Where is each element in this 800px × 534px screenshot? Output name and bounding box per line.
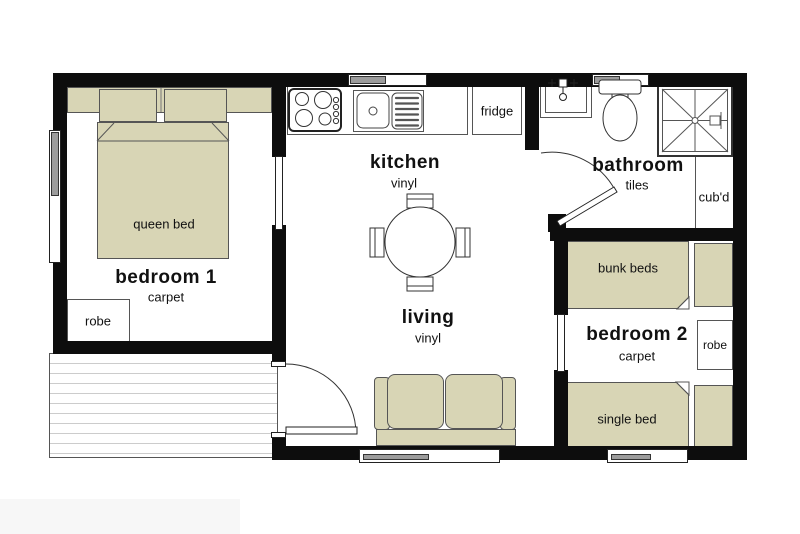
window-bathroom xyxy=(592,74,649,86)
queen-bed-pillow-right xyxy=(164,89,227,122)
cupboard-divider xyxy=(695,157,696,228)
wall-bedroom1-bottom xyxy=(53,341,286,354)
dining-table xyxy=(385,207,455,277)
floor-label-kitchen: vinyl xyxy=(391,176,417,191)
room-label-living: living xyxy=(402,307,455,329)
label-bunk-beds: bunk beds xyxy=(598,261,658,276)
floor-label-bathroom: tiles xyxy=(625,178,648,193)
window-kitchen xyxy=(348,74,427,86)
label-queen-bed: queen bed xyxy=(133,217,194,232)
dining-chairs xyxy=(370,194,470,291)
entry-door-leaf xyxy=(286,427,357,434)
bunk-beds-pillow xyxy=(694,243,733,307)
single-bed-pillow xyxy=(694,385,733,448)
floor-label-bedroom2: carpet xyxy=(619,349,655,364)
floor-plan: bedroom 1 carpet queen bed robe kitchen … xyxy=(0,0,800,534)
window-bedroom1 xyxy=(49,130,61,263)
label-cupboard: cub'd xyxy=(699,190,730,205)
wall-bathroom-left xyxy=(525,87,539,150)
floor-label-living: vinyl xyxy=(415,331,441,346)
label-robe-bedroom1: robe xyxy=(85,314,111,329)
room-label-bathroom: bathroom xyxy=(592,155,684,177)
entry-door-arc xyxy=(286,364,356,434)
entry-door-jamb-top xyxy=(271,361,286,367)
wall-bedroom2-left-lower xyxy=(554,370,568,446)
sofa-cushion-right xyxy=(445,374,503,429)
sofa-cushion-left xyxy=(387,374,444,429)
wall-bedroom1-lower xyxy=(272,225,286,365)
sofa-base xyxy=(376,429,516,446)
window-living xyxy=(359,449,500,463)
wall-bedroom2-left-upper xyxy=(554,241,568,315)
label-single-bed: single bed xyxy=(597,412,656,427)
window-bedroom2 xyxy=(607,449,688,463)
room-label-bedroom1: bedroom 1 xyxy=(115,267,217,289)
scan-artifact xyxy=(0,499,240,534)
bed-corner-folds xyxy=(676,297,689,395)
shower-tray xyxy=(662,89,728,152)
wall-right xyxy=(733,73,747,460)
wall-bedroom1-upper xyxy=(272,87,286,157)
floor-label-bedroom1: carpet xyxy=(148,290,184,305)
sliding-door-bedroom2 xyxy=(557,314,565,372)
sliding-door-bedroom1 xyxy=(275,156,283,230)
queen-bed xyxy=(97,122,229,259)
bathroom-door-leaf xyxy=(557,187,617,226)
wall-bedroom2-top xyxy=(550,228,747,241)
stove xyxy=(288,88,342,132)
kitchen-sink xyxy=(353,90,424,132)
queen-bed-pillow-left xyxy=(99,89,157,122)
room-label-bedroom2: bedroom 2 xyxy=(586,324,688,346)
entry-door-jamb-bottom xyxy=(271,432,286,438)
label-fridge: fridge xyxy=(481,104,514,119)
room-label-kitchen: kitchen xyxy=(370,152,440,174)
deck-area xyxy=(49,353,278,458)
bathroom-basin xyxy=(545,84,587,113)
label-robe-bedroom2: robe xyxy=(703,338,727,352)
toilet xyxy=(599,80,641,141)
